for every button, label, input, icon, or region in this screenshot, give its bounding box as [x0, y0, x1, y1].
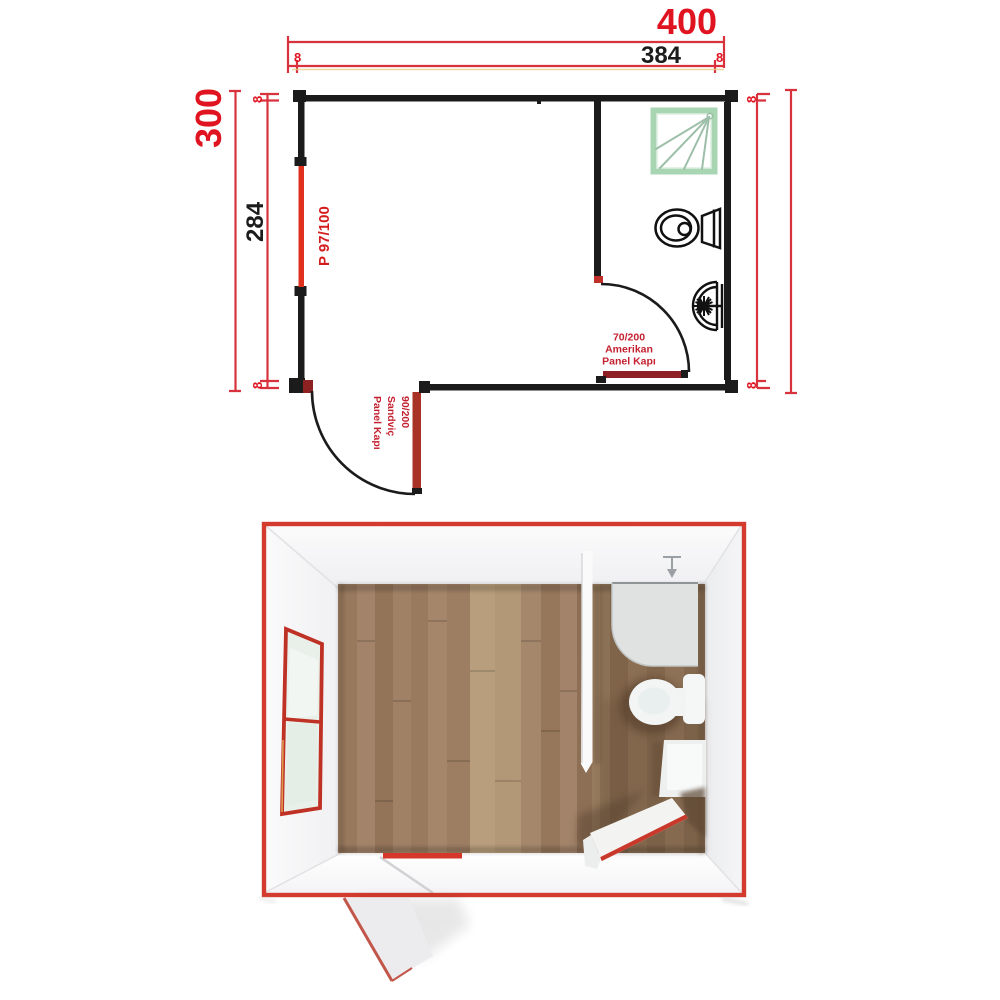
svg-text:Amerikan: Amerikan [605, 344, 653, 356]
svg-text:Panel Kapı: Panel Kapı [371, 396, 383, 450]
svg-text:8: 8 [250, 382, 265, 389]
svg-text:Panel Kapı: Panel Kapı [602, 356, 656, 368]
svg-text:400: 400 [657, 1, 717, 42]
svg-text:8: 8 [294, 50, 301, 65]
svg-text:90/200: 90/200 [399, 396, 411, 428]
svg-text:8: 8 [744, 96, 759, 103]
svg-text:384: 384 [641, 42, 682, 69]
svg-text:8: 8 [744, 382, 759, 389]
svg-text:Sandviç: Sandviç [385, 396, 397, 436]
svg-text:284: 284 [242, 201, 269, 242]
svg-text:P 97/100: P 97/100 [316, 206, 333, 266]
svg-text:8: 8 [716, 50, 723, 65]
svg-text:300: 300 [188, 88, 229, 148]
svg-text:70/200: 70/200 [613, 332, 645, 344]
svg-text:8: 8 [250, 96, 265, 103]
